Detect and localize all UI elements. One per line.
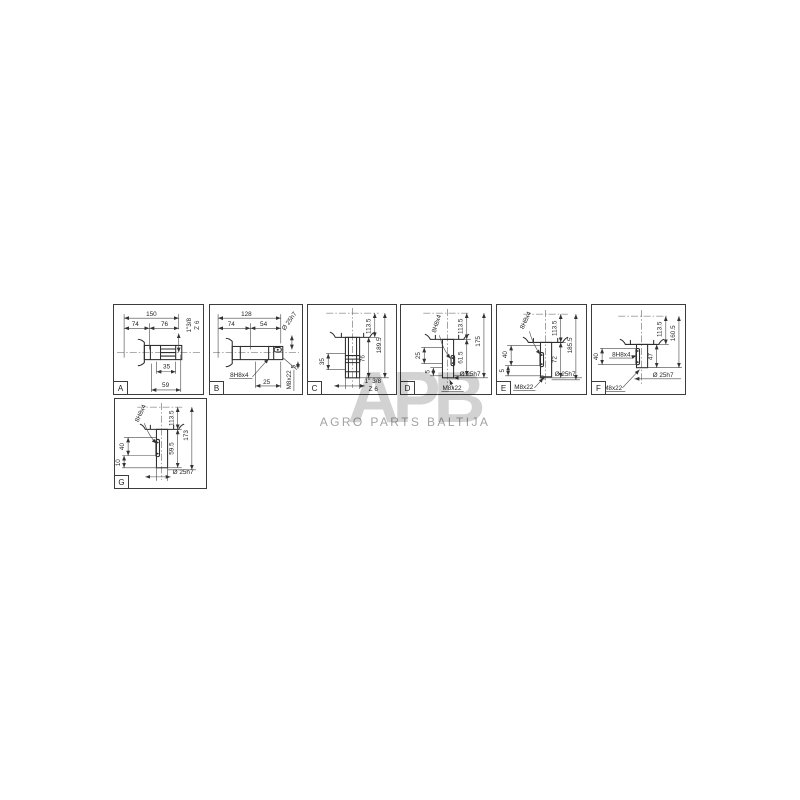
panel-letter-text: G [118,478,124,487]
dim-total-height: 160.5 [670,325,677,341]
dim-key-length: 40 [119,443,126,451]
dim-total-height: 175 [475,336,482,347]
dim-spline-teeth: Z 6 [194,320,201,330]
dim-hub-width: 35 [319,358,326,366]
dim-segment-2: 76 [161,321,169,328]
dim-shaft-length: 59 [162,382,170,389]
dimension-labels: 128 74 54 Ø 25h7 8H8x4 25 5 M8x22 [228,310,299,389]
dim-screw: M8x22 [603,385,623,392]
dim-shaft-diameter: Ø 25h7 [281,310,299,331]
dim-shaft-height: 72 [552,356,559,364]
panel-letter-text: A [118,384,123,393]
dim-total-height: 185.5 [567,337,574,353]
dim-screw: M8x22 [286,370,293,390]
dim-screw: M8x22 [514,384,534,391]
part-outline [138,339,181,365]
dim-keyway: 8H8x4 [612,352,631,359]
dim-total-length: 128 [241,311,252,318]
panel-letter: E [497,381,511,394]
watermark-subtitle: AGRO PARTS BALTIJA [315,415,495,429]
dim-keyway: 8H8x4 [519,310,533,330]
dim-total-height: 189.5 [376,337,383,353]
dim-shaft-height: 47 [648,353,655,361]
dim-segment-1: 74 [228,321,236,328]
dim-segment-1: 74 [132,321,140,328]
dim-spline-spec: 1"3/8 [186,317,193,332]
dim-key-length: 40 [502,351,509,359]
panel-g: 8H8x4 113.5 59.5 173 40 10 Ø 25h7 G [114,398,207,489]
dimension-labels: 8H8x4 113.5 59.5 173 40 10 Ø 25h7 [115,403,194,476]
panel-letter: B [210,381,224,394]
dim-flange-height: 113.5 [169,410,176,426]
panel-letter-text: E [501,384,506,393]
dim-keyway: 8H8x4 [134,403,148,423]
dim-flange-height: 113.5 [552,320,559,336]
dim-keyway: 8H8x4 [230,372,249,379]
dim-tip-length: 10 [115,459,122,467]
dim-segment-2: 54 [260,321,268,328]
panel-b: 128 74 54 Ø 25h7 8H8x4 25 5 M8x22 B [209,304,303,395]
part-outline [226,338,297,369]
dim-shaft-height: 59.5 [169,442,176,455]
dim-chamfer: 5 [290,364,297,368]
dim-shaft-diameter: Ø 25h7 [653,372,674,379]
panel-e: 8H8x4 113.5 72 185.5 40 5 Ø 25h7 M8x22 E [496,304,587,395]
dim-total-length: 150 [146,311,157,318]
dim-chamfer: 5 [499,369,506,373]
dim-flange-height: 113.5 [366,318,373,334]
panel-letter-text: C [312,384,318,393]
catalog-drawing-image: 150 74 76 1"3/8 Z 6 35 59 A [0,0,800,800]
panel-letter-text: B [214,384,219,393]
dim-keyway: 8H8x4 [431,313,443,333]
dimension-labels: 150 74 76 1"3/8 Z 6 35 59 [132,311,201,389]
part-outline [140,424,183,467]
dim-shaft-diameter: Ø 25h7 [555,371,576,378]
dim-key-length: 40 [593,353,600,361]
panel-letter: A [114,381,128,394]
dim-hub-width: 35 [163,364,171,371]
panel-letter: C [308,381,322,394]
dim-shaft-diameter: Ø 25h7 [173,469,194,476]
panel-letter: F [592,381,606,394]
panel-f: 8H8x4 40 47 113.5 160.5 Ø 25h7 M8x22 F [591,304,686,395]
dim-flange-height: 113.5 [458,318,465,334]
dim-total-height: 173 [183,430,190,441]
dim-key-length: 25 [263,379,271,386]
panel-letter: G [115,475,129,488]
panel-a: 150 74 76 1"3/8 Z 6 35 59 A [113,304,204,395]
panel-letter-text: F [596,384,601,393]
dim-flange-height: 113.5 [657,321,664,337]
